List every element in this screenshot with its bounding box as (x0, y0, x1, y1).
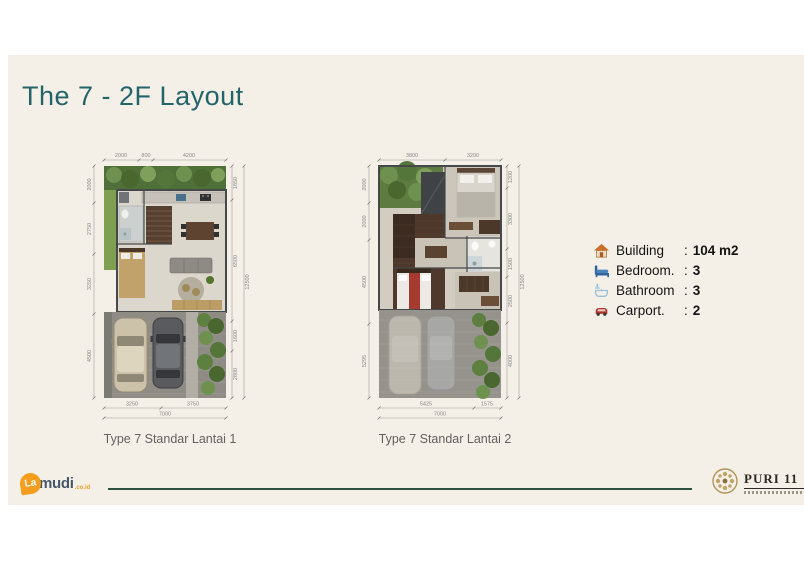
dim-label: 1600 (233, 330, 239, 342)
dim-label: 1575 (481, 402, 493, 408)
spec-label: Carport. (616, 303, 684, 318)
spec-list: Building : 104 m2 Bedroom. : 3 Bathroom … (593, 240, 739, 320)
spec-row-bedroom: Bedroom. : 3 (593, 260, 739, 280)
spec-row-bathroom: Bathroom : 3 (593, 280, 739, 300)
floor-plan-lantai-1-svg: 2000 800 4200 2000 2750 3250 4500 1850 6… (84, 150, 256, 422)
spec-colon: : (684, 303, 688, 318)
spec-colon: : (684, 263, 688, 278)
dim-label: 4500 (362, 276, 368, 288)
dim-label: 3250 (126, 402, 138, 408)
page-title: The 7 - 2F Layout (22, 81, 244, 112)
spec-value: 2 (693, 303, 701, 318)
wardrobe-2 (459, 276, 489, 292)
lamudi-logo: La mudi .co.id (20, 473, 90, 494)
bed-icon (593, 263, 610, 278)
plan-caption-lantai-1: Type 7 Standar Lantai 1 (84, 432, 256, 446)
car-dark (151, 318, 186, 388)
spec-label: Bedroom. (616, 263, 684, 278)
footer-divider-line (108, 488, 692, 490)
dim-label: 3200 (467, 153, 479, 159)
rug (178, 277, 204, 303)
fridge (119, 192, 129, 203)
dim-label: 2000 (87, 178, 93, 190)
wardrobe (479, 220, 501, 234)
dim-label: 5425 (420, 402, 432, 408)
dim-label: 3750 (187, 402, 199, 408)
dim-label: 800 (141, 153, 150, 159)
dim-label: 5295 (362, 355, 368, 367)
puri-tagline (744, 491, 804, 494)
spec-value: 3 (693, 263, 701, 278)
dim-label: 3250 (87, 278, 93, 290)
dim-label: 3800 (406, 153, 418, 159)
stairs (146, 206, 172, 244)
puri-emblem-icon (711, 467, 739, 495)
dim-label: 3300 (508, 213, 514, 225)
dim-label: 1500 (508, 258, 514, 270)
tv-console (449, 222, 473, 230)
spec-label: Bathroom (616, 283, 684, 298)
floor-plan-lantai-2: 3800 3200 2000 2000 4500 5295 1200 3300 … (359, 150, 531, 446)
sofa (170, 258, 212, 273)
spec-value: 104 m2 (693, 243, 739, 258)
car-beige (112, 318, 150, 392)
spec-colon: : (684, 243, 688, 258)
dresser (425, 246, 447, 258)
bathroom-icon (593, 283, 610, 298)
lamudi-logo-text: mudi (39, 475, 74, 492)
puri-text-block: PURI 11 (744, 471, 804, 494)
lamudi-logo-suffix: .co.id (75, 485, 91, 491)
plant (206, 276, 214, 284)
dim-label-total: 7000 (434, 412, 446, 418)
dim-label: 1850 (233, 177, 239, 189)
dim-label: 2000 (115, 153, 127, 159)
grass-strip (104, 190, 117, 270)
house-icon (593, 243, 610, 258)
dim-label: 6500 (233, 255, 239, 267)
car-icon (593, 303, 610, 318)
dining-table (186, 222, 214, 240)
spec-value: 3 (693, 283, 701, 298)
desk (481, 296, 499, 306)
plan-caption-lantai-2: Type 7 Standar Lantai 2 (359, 432, 531, 446)
dim-label: 2750 (87, 223, 93, 235)
dim-label-total: 12500 (245, 274, 251, 289)
spec-row-building: Building : 104 m2 (593, 240, 739, 260)
dim-label: 2500 (508, 295, 514, 307)
spec-label: Building (616, 243, 684, 258)
puri-name: PURI 11 (744, 471, 804, 489)
dim-label: 4200 (183, 153, 195, 159)
dim-label: 4500 (87, 350, 93, 362)
puri-11-logo: PURI 11 (711, 467, 804, 495)
dim-label: 1200 (508, 171, 514, 183)
floor-plan-lantai-2-svg: 3800 3200 2000 2000 4500 5295 1200 3300 … (359, 150, 531, 422)
dim-label: 2000 (362, 178, 368, 190)
dim-label-total: 12500 (520, 274, 526, 289)
spec-colon: : (684, 283, 688, 298)
spec-row-carport: Carport. : 2 (593, 300, 739, 320)
dim-label: 4000 (508, 355, 514, 367)
dim-label: 2800 (233, 368, 239, 380)
dim-label-total: 7000 (159, 412, 171, 418)
floor-plan-lantai-1: 2000 800 4200 2000 2750 3250 4500 1850 6… (84, 150, 256, 446)
dim-label: 2000 (362, 215, 368, 227)
